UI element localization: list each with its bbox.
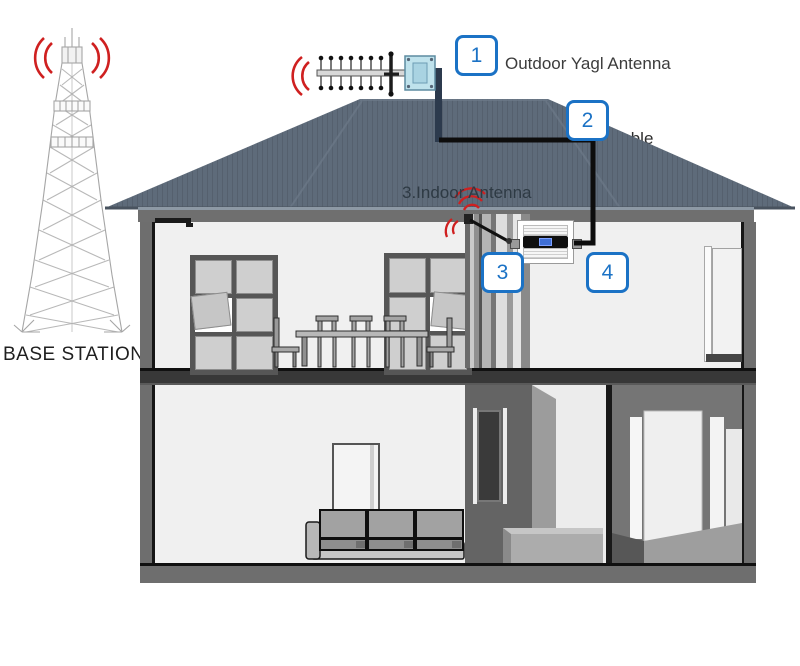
indoor-antenna-icon — [464, 214, 512, 244]
callout-4: 4 — [586, 252, 629, 293]
indoor-antenna-label: 3.Indoor Antenna — [402, 183, 532, 203]
yagi-signal-waves-icon — [293, 57, 309, 95]
diagram-canvas: BASE STATION — [0, 0, 800, 666]
callout-3: 3 — [481, 252, 524, 293]
callout-2: 2 — [566, 100, 609, 141]
yagi-antenna-icon — [295, 48, 445, 108]
callout-1: 1 — [455, 35, 498, 76]
